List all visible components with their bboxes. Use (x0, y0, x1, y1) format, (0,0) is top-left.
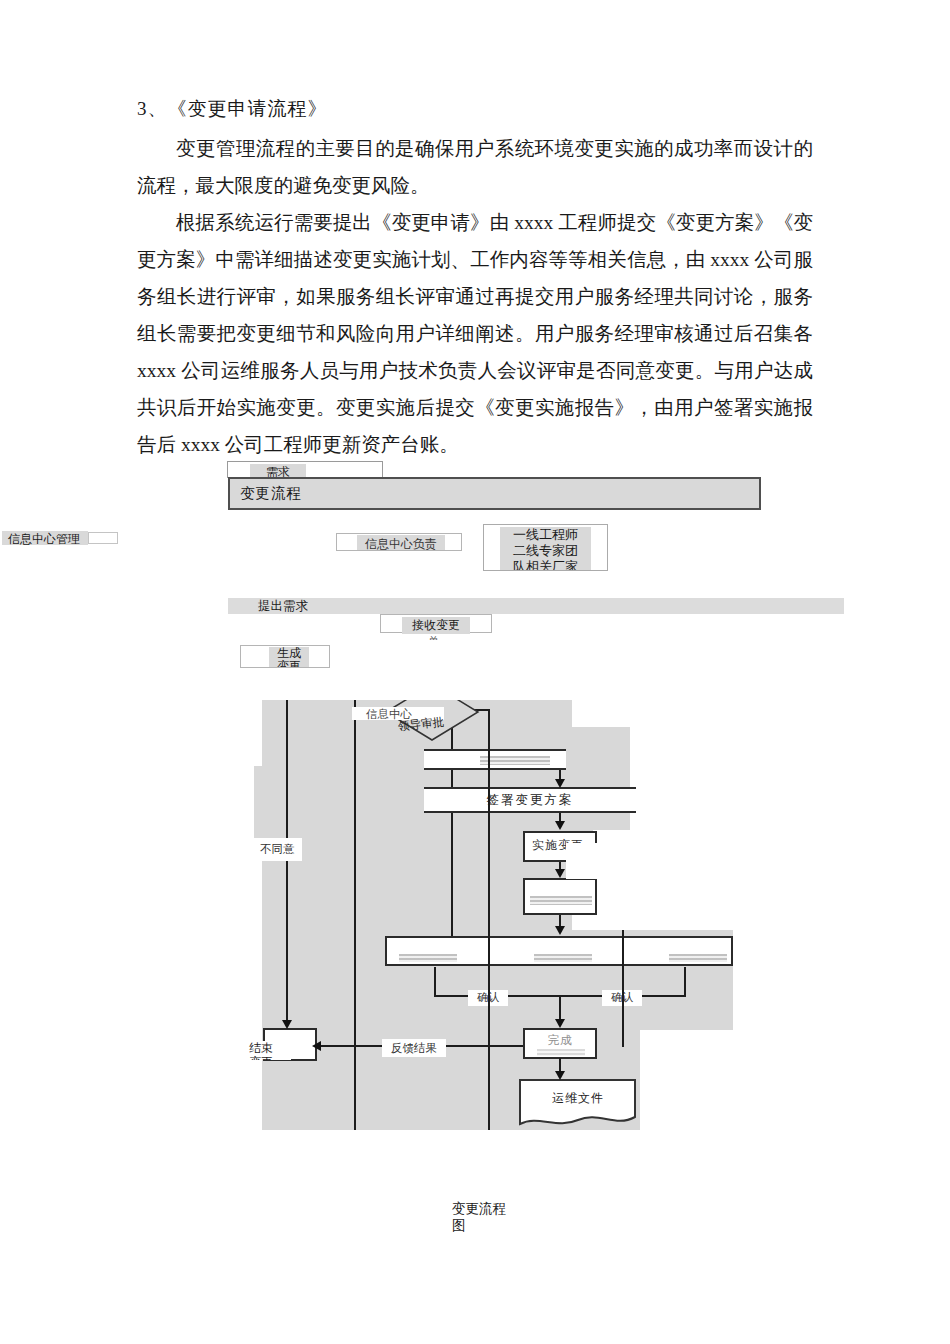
sign-plan-bar: 签署变更方案 (424, 787, 636, 813)
feedback-label: 反馈结果 (382, 1039, 446, 1057)
arrow-down-icon (555, 1019, 565, 1028)
flow-header-bar: 变更流程 (228, 477, 761, 510)
check-bar (424, 749, 566, 770)
receive-box: 接收变更 (380, 614, 492, 633)
arrow-down-icon (555, 779, 565, 788)
white-overlay (566, 843, 662, 879)
flow-line (354, 700, 356, 1130)
receive-clipped-char: 单 (428, 634, 446, 640)
arrow-line (559, 997, 561, 1020)
illegible-text-smudge (530, 896, 592, 905)
document-page: 3、《变更申请流程》 变更管理流程的主要目的是确保用户系统环境变更实施的成功率而… (0, 0, 950, 1344)
generate-text: 生成 变更 (269, 647, 309, 668)
change-flowchart: 需求 变更流程 信息中心管理 信息中心负责 一线工程师 二线专家团 队相关厂家 … (0, 0, 950, 1344)
generate-box: 生成 变更 (240, 645, 330, 668)
lane-label-mid: 信息中心负责 (336, 533, 462, 551)
engineers-text: 一线工程师 二线专家团 队相关厂家 (500, 527, 591, 571)
figure-caption: 变更流程 图 (452, 1200, 542, 1234)
receive-text: 接收变更 (402, 617, 470, 634)
clipped-need-label: 需求 (250, 464, 306, 478)
report-bar (385, 936, 733, 966)
illegible-text-smudge (399, 954, 457, 962)
ops-doc-label: 运维文件 (517, 1090, 639, 1107)
illegible-text-smudge (537, 1049, 585, 1056)
lane-left-small-box (88, 532, 118, 544)
disagree-label: 不同意 (260, 842, 295, 857)
illegible-text-smudge (534, 954, 592, 962)
illegible-text-smudge (480, 756, 550, 765)
illegible-text-smudge (669, 954, 727, 962)
clipped-need-box: 需求 (227, 461, 383, 478)
arrow-down-icon (555, 926, 565, 935)
confirm-line-right (684, 967, 686, 997)
complete-text: 完成 (548, 1034, 573, 1046)
complete-box: 完成 (523, 1028, 597, 1059)
arrow-down-icon (555, 821, 565, 830)
arrow-down-icon (555, 869, 565, 878)
lane-label-left: 信息中心管理 (2, 531, 88, 545)
arrow-left-icon (312, 1041, 321, 1051)
flow-line (488, 709, 490, 1130)
propose-bar: 提出需求 (228, 598, 844, 614)
flow-gray-region (572, 727, 630, 830)
middle-box (523, 878, 597, 915)
arrow-into-end-box (282, 1020, 292, 1029)
confirm-line-left (434, 967, 436, 997)
end-box-label: 结束 变更 (234, 1041, 291, 1060)
arrow-down-icon (555, 1071, 565, 1080)
flow-gray-region (254, 766, 262, 838)
white-overlay (600, 889, 662, 930)
lane-mid-text: 信息中心负责 (357, 535, 445, 551)
flow-line (622, 930, 624, 1047)
engineers-box: 一线工程师 二线专家团 队相关厂家 (483, 524, 608, 571)
